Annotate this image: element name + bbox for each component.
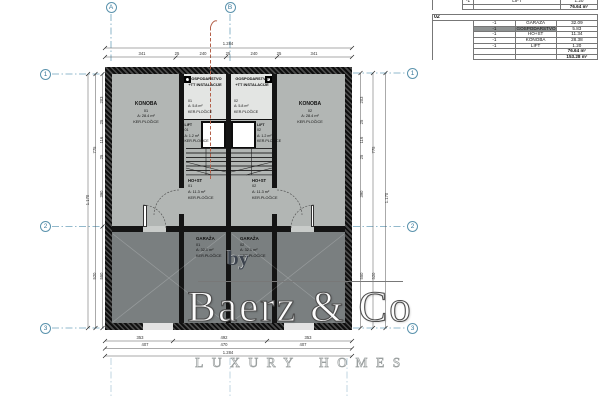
room-label-host-01: HO+ST 01 A: 11.3 m² KER.PLOČICE: [188, 178, 214, 201]
floorplan-page: A B 1 2 3 1 2 3 1.284 341 25 240 25 240 …: [0, 0, 600, 400]
dim-left-seg: 25: [99, 155, 103, 160]
dim-left-mid: 520: [92, 273, 96, 280]
dim-right-mid: 775: [372, 147, 376, 154]
dim-right-seg: 203: [359, 97, 363, 104]
dim-left-seg: 25: [99, 120, 103, 125]
room-label-lift-01: LIFT 01 A: 1.2 m² KER.PLOČICE: [185, 123, 209, 145]
grid-axis-b: B: [225, 2, 236, 13]
grid-axis-2-right: 2: [407, 221, 418, 232]
dim-right-mid: 520: [372, 273, 376, 280]
grid-axis-a: A: [106, 2, 117, 13]
dim-top-seg: 25: [226, 52, 231, 56]
dim-left-seg: 203: [99, 97, 103, 104]
dim-bottom-seg2: 470: [221, 343, 228, 347]
door-opening-konoba-left: [179, 188, 184, 214]
brand-tagline: LUXURY HOMES: [195, 355, 409, 371]
door-leaf-garage-left: [143, 205, 147, 227]
area-table-carry: -1 LIFT 1.20 76.64 m²: [432, 0, 598, 10]
dim-top-seg: 240: [251, 52, 258, 56]
grid-axis-1-left: 1: [40, 69, 51, 80]
room-detail-gospodarstvo-02: 02 A: 5.8 m² KER.PLOČICE: [234, 99, 258, 115]
room-label-konoba-02: KONOBA 02 A: 28.4 m² KER.PLOČICE: [297, 101, 323, 126]
dim-right-seg: 25: [359, 155, 363, 160]
dim-right-seg: 550: [359, 273, 363, 280]
room-detail-gospodarstvo-01: 01 A: 5.8 m² KER.PLOČICE: [188, 99, 212, 115]
room-label-lift-02: LIFT 02 A: 1.2 m² KER.PLOČICE: [257, 123, 281, 145]
brand-by: by: [227, 246, 249, 271]
room-label-host-02: HO+ST 02 A: 11.3 m² KER.PLOČICE: [252, 178, 278, 201]
dim-bottom-seg: 492: [221, 336, 228, 340]
dim-top-seg: 25: [175, 52, 180, 56]
dim-left-mid: 775: [92, 147, 96, 154]
dim-left-total: 1.170: [85, 195, 89, 205]
area-table: -1 LIFT 1.20 76.64 m² 02: [432, 0, 598, 60]
area-table-total-row: 153.28 m²: [433, 54, 598, 60]
garage-exit-left: [143, 323, 173, 330]
area-table-section-02: 02 -1 GARAŽA 32.09 -1 GOSPODARSTVO +TT I…: [432, 14, 598, 61]
grid-axis-3-left: 3: [40, 323, 51, 334]
room-label-gospodarstvo-02: GOSPODARSTVO +TT INSTALACIJE: [235, 76, 268, 88]
stairs-01: [186, 148, 226, 175]
dim-left-seg: 390: [99, 191, 103, 198]
dim-right-total: 1.170: [384, 193, 388, 203]
room-label-garaza-01: GARAŽA 01 A: 32.1 m² KER.PLOČICE: [196, 236, 222, 260]
dim-bottom-seg: 353: [305, 336, 312, 340]
dim-right-seg: 25: [359, 120, 363, 125]
dim-top-seg: 25: [277, 52, 282, 56]
grid-axis-2-left: 2: [40, 221, 51, 232]
dim-top-seg: 341: [139, 52, 146, 56]
lift-shaft-02: [231, 121, 256, 149]
grid-axis-1-right: 1: [407, 68, 418, 79]
dim-top-total: 1.284: [223, 42, 233, 46]
door-leaf-garage-right: [311, 205, 315, 227]
dim-bottom-seg2: 407: [300, 343, 307, 347]
room-label-konoba-01: KONOBA 01 A: 28.4 m² KER.PLOČICE: [133, 101, 159, 126]
dim-top-seg: 341: [311, 52, 318, 56]
room-label-gospodarstvo-01: GOSPODARSTVO +TT INSTALACIJE: [188, 76, 221, 88]
dim-top-seg: 240: [200, 52, 207, 56]
dim-bottom-seg2: 407: [142, 343, 149, 347]
dim-right-seg: 390: [359, 191, 363, 198]
stairs-02: [231, 148, 272, 175]
brand-wordmark: Baerz & Co: [187, 283, 412, 332]
dim-bottom-seg: 353: [137, 336, 144, 340]
brand-underline: [198, 281, 403, 282]
dim-left-seg: 550: [99, 273, 103, 280]
dim-left-seg: 116: [99, 137, 103, 144]
dim-right-seg: 116: [359, 137, 363, 144]
area-table-subtotal-row: 76.64 m²: [433, 4, 598, 10]
